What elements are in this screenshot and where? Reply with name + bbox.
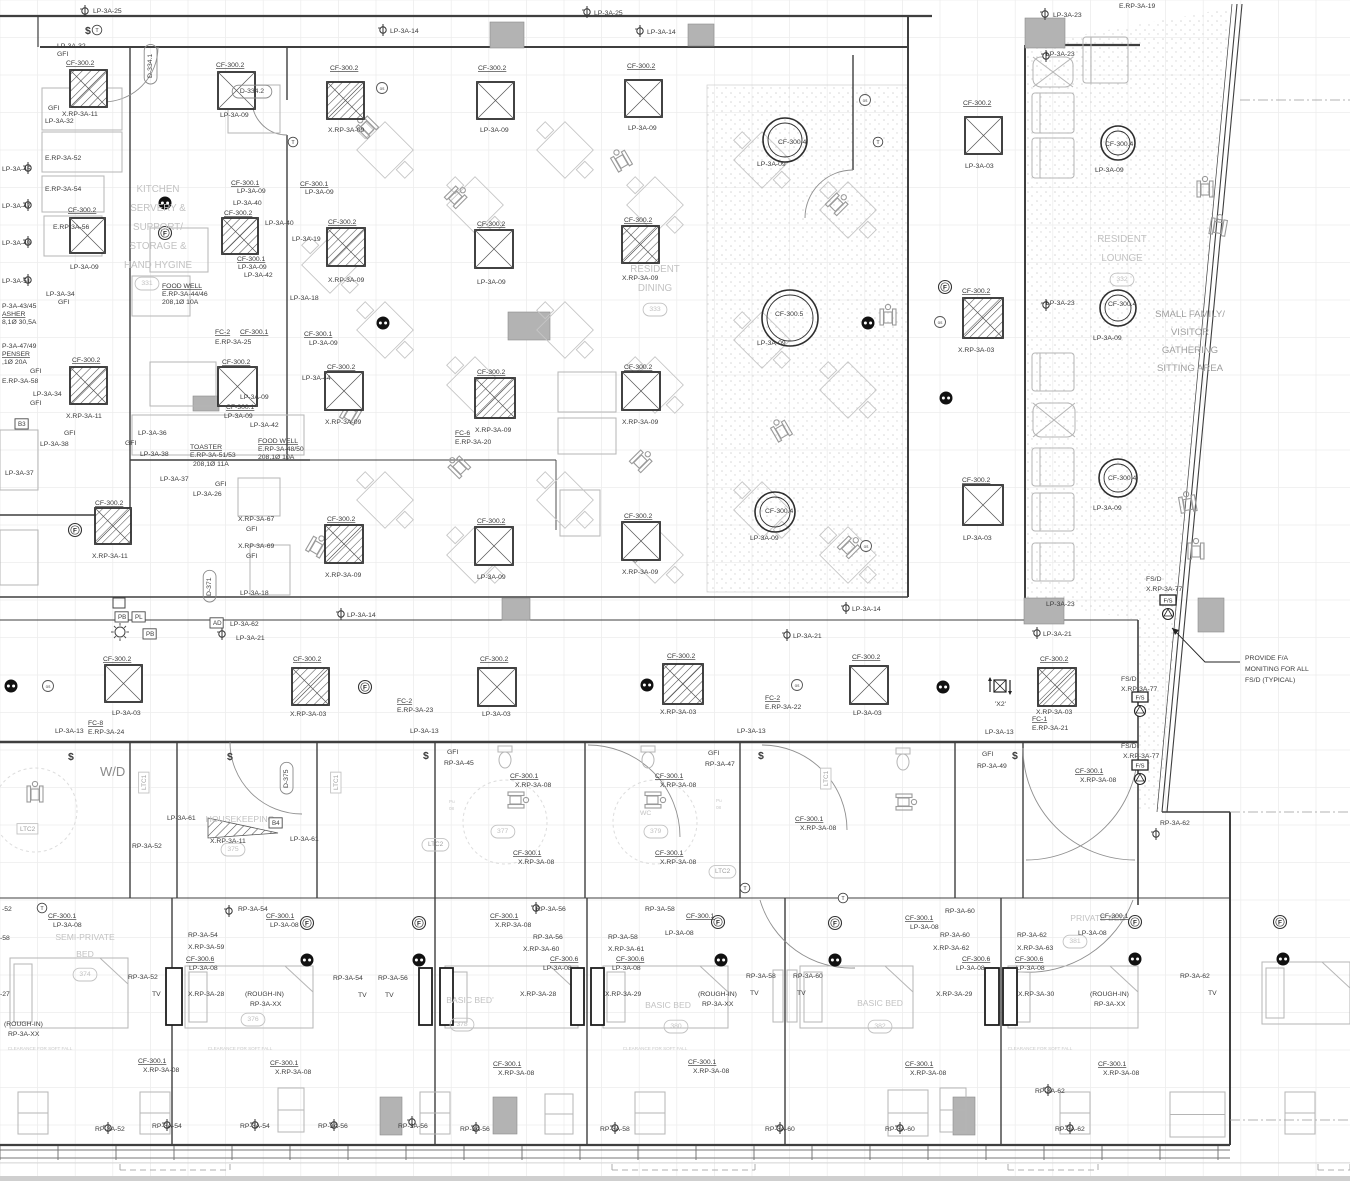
fs-box-label: F/S [1135,763,1144,769]
os-letter: os [863,98,869,103]
shaft-block [193,396,219,411]
os-letter: os [380,86,386,91]
plan-label: CF-300.1 [48,913,77,920]
plan-label: CF-300.1 [138,1058,167,1065]
wheelchair-wheel [508,792,524,796]
plan-label: LP-3A-03 [112,710,141,717]
plan-label: CF-300.1 [231,180,260,187]
plan-label: CF-300.2 [477,221,506,228]
bed-foldline [1110,966,1138,992]
plan-label: FC-6 [455,430,470,437]
plan-label: CF-300.2 [1040,656,1069,663]
plan-label: CF-300.2 [95,500,124,507]
plan-label: LP-3A-09 [224,413,253,420]
plan-label: GFI [447,749,458,756]
plan-label: RP-3A-60 [885,1126,915,1133]
shaft-block [688,24,714,46]
receptacle-icon [217,628,225,640]
exit-dot-eye [942,397,945,400]
plan-label: LP-3A-09 [70,264,99,271]
lower-floor-strip [0,1176,1350,1181]
plan-label: LP-3A-34 [33,391,62,398]
plan-label: LP-3A-13 [55,728,84,735]
exit-dot-eye [1131,958,1134,961]
plan-label: TV [797,990,806,997]
exit-dot-eye [836,959,839,962]
lamp-box [113,598,125,608]
wheelchair-wheel [645,792,661,796]
ceiling-fixture-square [475,378,515,418]
plan-label: X.RP-3A-09 [325,572,361,579]
plan-label: HAND HYGINE [124,260,193,271]
fan-symbol-icon: F [413,917,426,930]
thermostat-icon: T [873,137,883,147]
plan-label: RP-3A-62 [1035,1088,1065,1095]
wheelchair-icon [896,794,917,810]
plan-label: -52 [2,906,12,913]
ceiling-fixture-square [850,666,888,704]
exit-dot [1129,953,1142,966]
ceiling-fixture-square [663,664,703,704]
plan-label: LP-3A-42 [250,422,279,429]
plan-label: CF-300.1 [493,1061,522,1068]
plan-label: X.RP-3A-03 [1036,709,1072,716]
plan-label: RP-3A-56 [460,1126,490,1133]
exit-dot-eye [12,685,15,688]
wheelchair-icon [508,792,529,808]
plan-label: CF-300.2 [480,656,509,663]
plan-label: LP-3A-13 [410,728,439,735]
door-swing [1023,748,1135,860]
plan-label: LP-3A-32 [45,118,74,125]
exit-dot-eye [643,684,646,687]
f-letter: F [305,920,309,927]
wheelchair-wheel [638,459,652,473]
exit-light-icon [829,954,842,967]
fan-symbol-icon: F [1274,916,1287,929]
f-letter: F [1278,919,1282,926]
plan-label: GFI [708,750,719,757]
thermostat-icon: T [37,903,47,913]
plan-label: GFI [57,51,68,58]
plan-label: CF-300.1 [795,816,824,823]
plan-label: CF-300.2 [477,369,506,376]
plan-label: SUPPORT/ [133,222,183,233]
plan-label: ASHER [2,311,26,318]
plan-label: CF-300.2 [627,63,656,70]
thermostat-icon: T [92,25,102,35]
ceiling-fixture-square [95,508,131,544]
wheelchair-seat [453,461,466,474]
plan-label: X.RP-3A-09 [622,419,658,426]
plan-label: CF-300.1 [655,850,684,857]
plan-label: CF-300.6 [1015,956,1044,963]
plan-label: RP-3A-58 [746,973,776,980]
plan-label: X.RP-3A-61 [608,946,644,953]
plan-label: LP-3A-09 [757,340,786,347]
fs-circle [1135,774,1146,785]
wheelchair-seat [616,155,628,169]
plan-label: LP-3A-09 [240,394,269,401]
plan-label: X.RP-3A-08 [800,825,836,832]
wheelchair-head [318,535,325,542]
plan-label: CF-300.2 [66,60,95,67]
x2-arrowhead [988,677,992,681]
ceiling-fixture-square [475,527,513,565]
plan-label: LP-3A-08 [910,924,939,931]
plan-label: LP-3A-09 [480,127,509,134]
occupancy-sensor-icon: os [377,83,388,94]
plan-label: RP-3A-52 [132,843,162,850]
exit-dot-eye [384,322,387,325]
plan-label: CF-300.2 [624,364,653,371]
plan-label: E.RP-3A-44/46 [162,291,208,298]
plan-label: LTC2 [715,868,731,875]
plan-label: LP-3A-13 [737,728,766,735]
plan-label: RP-3A-60 [793,973,823,980]
plan-label: FOOD WELL [162,283,202,290]
f-letter: F [1133,919,1137,926]
plan-label: LP-3A-38 [140,451,169,458]
plan-label: E.RP-3A-19 [1119,3,1155,10]
plan-label: CF-300.1 [686,913,715,920]
exit-dot [413,954,426,967]
ceiling-fixture-square [327,228,365,266]
plan-label: RP-3A-62 [1017,932,1047,939]
ceiling-fixture-square [625,80,662,117]
plan-label: CF-300.1 [300,181,329,188]
plan-label: CF-300.6 [616,956,645,963]
fan-symbol-icon: F [829,917,842,930]
plan-label: CLEARANCE FOR SOFT FALL [8,1046,73,1051]
plan-label: LP-3A-51 [2,278,31,285]
wheelchair-head [1217,214,1223,220]
plan-label: LP-3A-08 [53,922,82,929]
plan-label: RP-3A-56 [533,934,563,941]
exit-dot-eye [869,322,872,325]
plan-label: TV [358,992,367,999]
wheelchair-icon [645,792,666,808]
turning-circle [0,768,77,852]
plan-label: GFI [215,481,226,488]
bed-foldline [285,966,313,992]
wheelchair-wheel [448,465,462,479]
plan-label: X.RP-3A-09 [328,127,364,134]
plan-label: $ [423,750,429,762]
ceiling-fixture-square [475,230,513,268]
bed-pillow [1266,968,1284,1018]
plan-label: CF-300.2 [624,217,653,224]
wheelchair-seat [510,796,521,804]
floor-plan: ososososososFFFFFFFFFFTTTTTTF/SF/SF/SLP-… [0,0,1350,1181]
ceiling-fixture-square [963,298,1003,338]
plan-label: X.RP-3A-08 [910,1070,946,1077]
plan-label: $ [1012,750,1018,762]
plan-label: 208,1Ø 10A [258,454,295,461]
plan-label: LP-3A-14 [347,612,376,619]
plan-label: RP-3A-49 [977,763,1007,770]
plan-label: 332 [1116,276,1128,283]
plan-label: CF-300.6 [550,956,579,963]
os-letter: os [795,683,801,688]
toilet-tank [498,746,512,752]
f-letter: F [73,527,77,534]
plan-label: 378 [456,1021,468,1028]
plan-label: LP-3A-08 [665,930,694,937]
plan-label: FS/D [1121,676,1137,683]
plan-label: X.RP-3A-11 [62,111,98,118]
plan-label: CF-300.2 [68,207,97,214]
plan-label: LP-3A-08 [1016,965,1045,972]
toilet-bowl [642,752,654,768]
plan-label: RP-3A-54 [152,1123,182,1130]
plan-label: LP-3A-09 [220,112,249,119]
plan-label: Pu [449,799,455,804]
plan-label: CF-300.1 [905,915,934,922]
exit-light-icon [862,317,875,330]
plan-label: RP-3A-XX [1094,1001,1126,1008]
exit-dot-eye [308,959,311,962]
plan-label: LP-3A-49 [2,240,31,247]
lamp-ray [124,626,126,628]
exit-dot-eye [1279,958,1282,961]
wheelchair-seat [310,541,322,555]
wardrobe [591,968,604,1025]
shaft-block [493,1097,517,1134]
plan-label: X.RP-3A-08 [1103,1070,1139,1077]
plan-label: Pu [716,798,722,803]
plan-label: CF-300.4 [778,139,807,146]
wheelchair-wheel [645,805,661,809]
plan-label: BASIC BED' [446,995,494,1005]
thermostat-icon: T [838,893,848,903]
plan-label: X.RP-3A-69 [238,543,274,550]
plan-label: PENSER [2,351,30,358]
ceiling-fixture-square [622,522,660,560]
ceiling-fixture-square [105,665,142,702]
os-letter: os [864,544,870,549]
plan-label: E.RP-3A-25 [215,339,251,346]
plan-label: E.RP-3A-20 [455,439,491,446]
ceiling-fixture-square [965,117,1002,154]
plan-label: KITCHEN [136,184,179,195]
plan-label: 333 [649,306,661,313]
plan-label: CF-300.1 [270,1060,299,1067]
plan-label: CF-300.1 [237,256,266,263]
plan-label: CF-300.1 [266,913,295,920]
fan-symbol-icon: F [301,917,314,930]
plan-label: RP-3A-62 [1055,1126,1085,1133]
exit-dot [377,317,390,330]
ceiling-fixture-square [325,525,363,563]
plan-label: CF-300.6 [962,956,991,963]
dining-table [357,302,414,359]
plan-label: CF-300.2 [962,288,991,295]
plan-label: CF-300.4 [765,508,794,515]
plan-label: VISITOR [1171,327,1209,338]
bed-pillow [14,964,32,1022]
plan-label: CF-300.4 [1108,301,1137,308]
plan-label: B3 [18,421,26,428]
plan-label: TOASTER [190,444,222,451]
plan-label: BASIC BED [645,1000,691,1010]
plan-label: LP-3A-08 [612,965,641,972]
plan-label: FS/D [1121,743,1137,750]
plan-label: E.RP-3A-58 [2,378,38,385]
plan-label: X.RP-3A-77 [1121,686,1157,693]
plan-label: SEMI-PRIVATE [55,932,115,942]
exit-light-icon [1277,953,1290,966]
exit-dot-eye [420,959,423,962]
plan-label: RP-3A-60 [765,1126,795,1133]
plan-label: 208,1Ø 11A [193,461,229,468]
plan-label: FS/D (TYPICAL) [1245,677,1295,684]
plan-label: CF-300.1 [1098,1061,1127,1068]
plan-label: LTC2 [428,841,444,848]
plan-label: TV [385,992,394,999]
counter [238,478,280,516]
plan-label: RP-3A-54 [238,906,268,913]
plan-label: D-334.2 [240,88,264,95]
plan-label: X.RP-3A-08 [518,859,554,866]
plan-label: X.RP-3A-11 [66,413,102,420]
plan-label: FS/D [1146,576,1162,583]
counter [558,372,616,412]
plan-label: X.RP-3A-08 [693,1068,729,1075]
plan-label: CF-300.2 [72,357,101,364]
plan-label: LP-3A-40 [265,220,294,227]
wardrobe [419,968,432,1025]
plan-label: FC-2 [397,698,412,705]
plan-label: PB [118,614,126,621]
plan-label: CF-300.1 [490,913,519,920]
wheelchair-head [1193,538,1198,543]
exit-dot [1277,953,1290,966]
door-swing [252,100,287,135]
plan-label: AD [213,620,222,627]
plan-label: P-3A-43/45 [2,303,37,310]
plan-label: 381 [1069,938,1081,945]
plan-label: E.RP-3A-52 [45,155,81,162]
counter [0,530,38,585]
plan-label: 'X2' [995,701,1006,708]
occupancy-sensor-icon: os [861,541,872,552]
exit-light-icon [413,954,426,967]
plan-label: PL [135,614,143,621]
ceiling-fixture-square [478,668,516,706]
carpet-dining [707,85,908,592]
bed-foldline [885,966,913,992]
plan-label: X.RP-3A-08 [143,1067,179,1074]
plan-label: LP-3A-09 [477,574,506,581]
plan-label: LTC2 [20,826,36,833]
plan-label: CF-300.2 [667,653,696,660]
plan-label: CF-300.1 [905,1061,934,1068]
plan-label: GFI [30,368,41,375]
plan-label: LP-3A-09 [477,279,506,286]
plan-label: LP-3A-09 [237,188,266,195]
plan-label: X.RP-3A-11 [210,838,246,845]
plan-label: 376 [247,1016,259,1023]
plan-label: LP-3A-34 [46,291,75,298]
x2-device-icon [988,677,1012,695]
plan-label: W/D [100,764,125,779]
plan-label: X.RP-3A-30 [1018,991,1054,998]
plan-label: CF-300.1 [655,773,684,780]
exit-dot-eye [1136,958,1139,961]
plan-label: E.RP-3A-48/50 [258,446,304,453]
plan-label: D-334.1 [147,54,154,78]
plan-label: 208,1Ø 10A [162,299,199,306]
plan-label: LP-3A-18 [240,590,269,597]
plan-label: FOOD WELL [258,438,298,445]
plan-label: E.RP-3A-51/53 [190,452,236,459]
plan-label: LP-3A-44 [302,375,331,382]
plan-label: LP-3A-23 [1046,601,1075,608]
plan-label: 8,1Ø 30,5A [2,319,37,326]
exit-dot-eye [939,686,942,689]
plan-label: E.RP-3A-23 [397,707,433,714]
plan-label: CF-300.2 [222,359,251,366]
plan-label: RP-3A-62 [1180,973,1210,980]
wardrobe [166,968,182,1025]
shaft-block [502,598,530,620]
wheelchair-wheel [27,786,31,802]
exit-light-icon [940,392,953,405]
plan-label: CF-300.4 [1108,475,1137,482]
plan-label: CF-300.2 [103,656,132,663]
plan-label: LP-3A-13 [985,729,1014,736]
wardrobe [571,968,584,1025]
exit-light-icon [715,954,728,967]
exit-light-icon [937,681,950,694]
lamp-ray [114,626,116,628]
plan-label: -27 [0,991,10,998]
plan-label: LP-3A-09 [305,189,334,196]
plan-label: X.RP-3A-03 [660,709,696,716]
plan-label: LP-3A-03 [853,710,882,717]
plan-label: SITTING AREA [1157,363,1224,374]
plan-label: PB [146,631,154,638]
plan-label: CF-300.1 [688,1059,717,1066]
plan-label: RP-3A-54 [333,975,363,982]
plan-label: TV [152,991,161,998]
plan-label: LP-3A-03 [965,163,994,170]
plan-label: RP-3A-58 [608,934,638,941]
exit-dot-eye [722,959,725,962]
plan-label: LP-3A-03 [963,535,992,542]
plan-label: LP-3A-21 [1043,631,1072,638]
plan-label: LP-3A-61 [167,815,196,822]
receptacle-icon [378,24,386,36]
door-swing [1026,748,1138,860]
plan-label: CF-300.2 [852,654,881,661]
plan-label: (ROUGH-IN) [698,991,737,998]
receptacle-icon [1151,828,1159,840]
exit-light-icon [641,679,654,692]
wheelchair-seat [634,455,647,468]
wheelchair-seat [898,798,909,806]
wheelchair-wheel [896,794,912,798]
f-letter: F [833,920,837,927]
plan-label: E.RP-3A-56 [53,224,89,231]
toilet-bowl [897,754,909,770]
exit-dot-eye [303,959,306,962]
plan-label: CF-300.2 [224,210,253,217]
wheelchair-head [644,451,651,458]
ceiling-fixture-square [622,226,659,263]
exit-dot-eye [864,322,867,325]
